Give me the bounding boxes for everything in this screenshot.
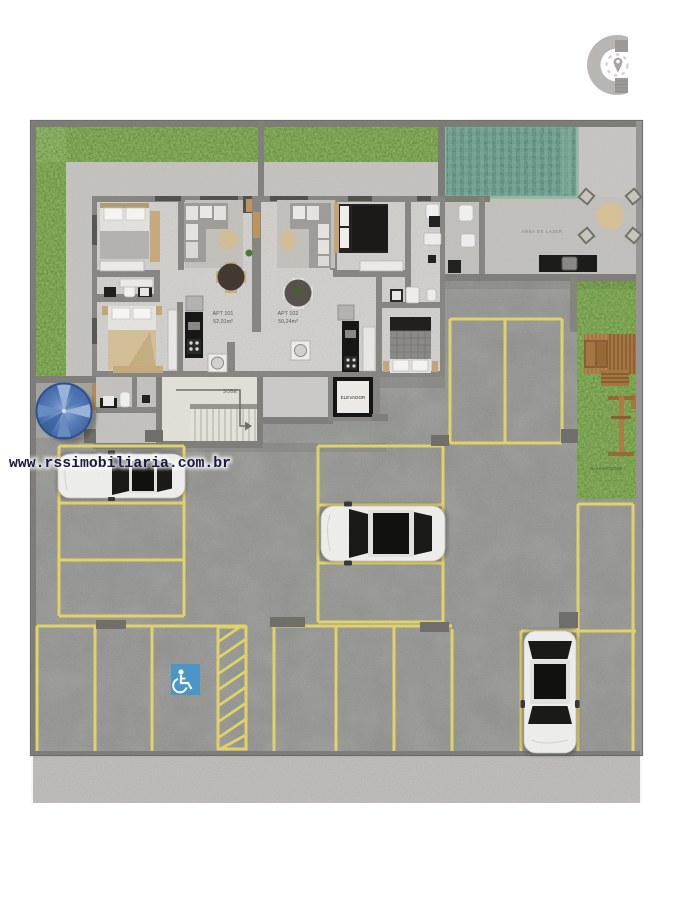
svg-text:www.rssimobiliaria.com.br: www.rssimobiliaria.com.br: [9, 456, 231, 472]
